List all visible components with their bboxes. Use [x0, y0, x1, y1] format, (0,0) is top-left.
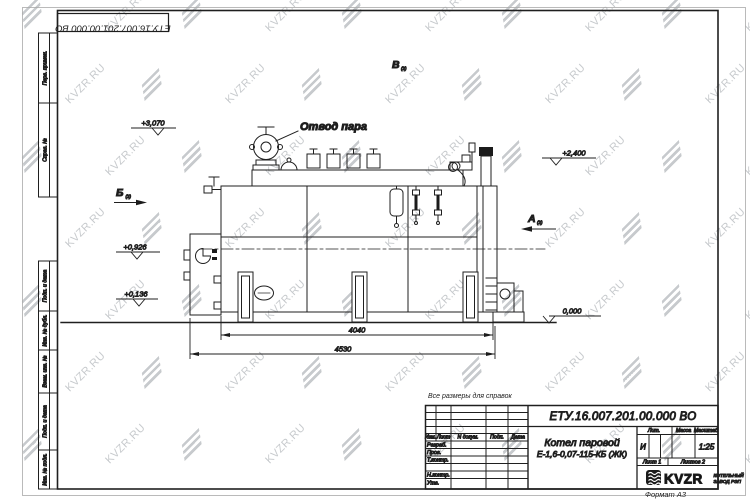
margin-column: Перв. примен. Справ. № Подп. и дата Инв.… — [39, 33, 58, 489]
tb-sheets-total: Листов 2 — [680, 459, 705, 465]
kvzr-brand-name: KVZR — [664, 472, 703, 487]
margin-box-label: Перв. примен. — [43, 51, 49, 85]
elevation-label: 0,000 — [563, 307, 583, 316]
elevation-label: +3,070 — [141, 119, 165, 128]
tb-header-doc: N докум. — [458, 435, 479, 441]
view-a-ref: (2) — [537, 220, 543, 225]
margin-box-label: Инв. № подл. — [43, 453, 49, 485]
elevation-label: +2,400 — [562, 149, 586, 158]
title-block: Изм. Лист N докум. Подп. Дата Разраб. Пр… — [425, 406, 744, 490]
tb-lit-header: Лит. — [647, 428, 660, 434]
tb-scale-header: Масштаб — [694, 428, 719, 434]
tb-row-label: Н.контр. — [427, 473, 450, 479]
dimension-4530-label: 4530 — [335, 345, 353, 354]
water-level-gauges — [390, 186, 442, 228]
tb-sheet-no: Лист 1 — [642, 459, 661, 465]
tb-row-label: Т.контр. — [427, 458, 449, 464]
drawing-canvas: Перв. примен. Справ. № Подп. и дата Инв.… — [0, 0, 750, 500]
kvzr-logo — [646, 470, 661, 485]
safety-valve-dome — [281, 162, 297, 170]
kvzr-brand-sub-2: ЗАВОД РЭП — [714, 479, 742, 485]
section-marks: Б (2) В (2) А (2) Отвод пара — [114, 59, 556, 232]
tb-mass-header: Масса — [676, 428, 691, 434]
margin-box-label: Подп. и дата — [43, 270, 49, 303]
view-v-label: В — [392, 59, 400, 71]
elevation-label: +0,926 — [123, 243, 147, 252]
view-b-label: Б — [116, 187, 124, 199]
tb-header-izm: Изм. — [425, 435, 436, 441]
tb-row-label: Утв. — [426, 481, 439, 487]
view-v-ref: (2) — [401, 66, 407, 71]
leader-line — [276, 131, 298, 141]
margin-box-label: Инв. № дубл. — [43, 315, 49, 347]
drawing-sheet: KVZR.RUKVZR.RUKVZR.RUKVZR.RUKVZR.RUKVZR.… — [0, 0, 750, 500]
margin-box-label: Взам. инв. № — [43, 355, 49, 387]
margin-box-label: Подп. и дата — [43, 405, 49, 438]
margin-box-label: Справ. № — [43, 138, 49, 162]
tb-product-name-2: Е-1,6-0,07-115-КБ (ЖК) — [537, 449, 627, 459]
dimension-4040-label: 4040 — [349, 326, 367, 335]
view-b-ref: (2) — [126, 194, 132, 199]
tb-row-label: Пров. — [427, 450, 441, 456]
steam-outlet-label: Отвод пара — [300, 121, 367, 133]
burner-box — [184, 234, 221, 315]
format-note: Формат А3 — [645, 490, 687, 499]
tb-header-list: Лист — [436, 435, 451, 441]
tb-row-label: Разраб. — [427, 443, 447, 449]
top-hatches — [307, 149, 380, 168]
flipped-docnumber-text: ЕТУ.16.007.201.00.000 ВО — [55, 23, 171, 34]
tb-doc-number: ЕТУ.16.007.201.00.000 ВО — [549, 411, 696, 423]
tb-header-date: Дата — [510, 435, 525, 441]
fan-unit — [493, 283, 524, 322]
tb-product-name-1: Котел паровой — [544, 437, 619, 449]
reference-note: Все размеры для справок — [428, 392, 513, 400]
tb-header-sign: Подп. — [490, 435, 504, 441]
elevation-label: +0,136 — [124, 290, 148, 299]
tb-lit-value: И — [640, 443, 646, 452]
support-legs — [238, 272, 478, 322]
steam-outlet-valve — [250, 127, 299, 170]
tb-scale-value: 1:25 — [699, 443, 715, 452]
flipped-docnumber-box: ЕТУ.16.007.201.00.000 ВО — [55, 14, 171, 34]
platform-right-fittings — [449, 143, 476, 186]
view-a-label: А — [527, 213, 536, 225]
exhaust-stack — [479, 147, 493, 186]
